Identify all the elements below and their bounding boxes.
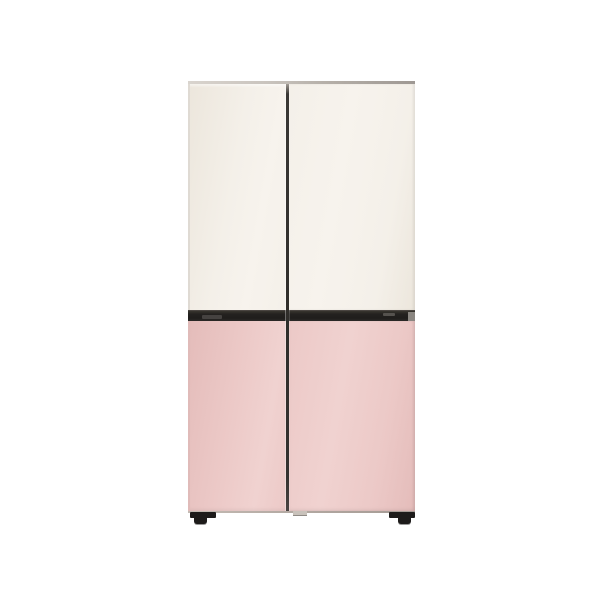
door-gap — [286, 84, 289, 511]
center-leveling-foot — [293, 511, 307, 516]
left-foot-wheel — [190, 512, 216, 518]
left-handle-recess — [202, 315, 222, 319]
strip-end-cap — [408, 312, 415, 321]
refrigerator — [188, 81, 415, 513]
lower-right-door-panel — [289, 321, 415, 511]
upper-left-door-panel — [188, 84, 286, 310]
right-foot-wheel — [389, 512, 415, 518]
handle-recess-strip — [188, 310, 415, 321]
product-photo — [0, 0, 600, 600]
right-handle-recess — [383, 313, 395, 316]
lower-left-door-panel — [188, 321, 286, 511]
upper-right-door-panel — [289, 84, 415, 310]
